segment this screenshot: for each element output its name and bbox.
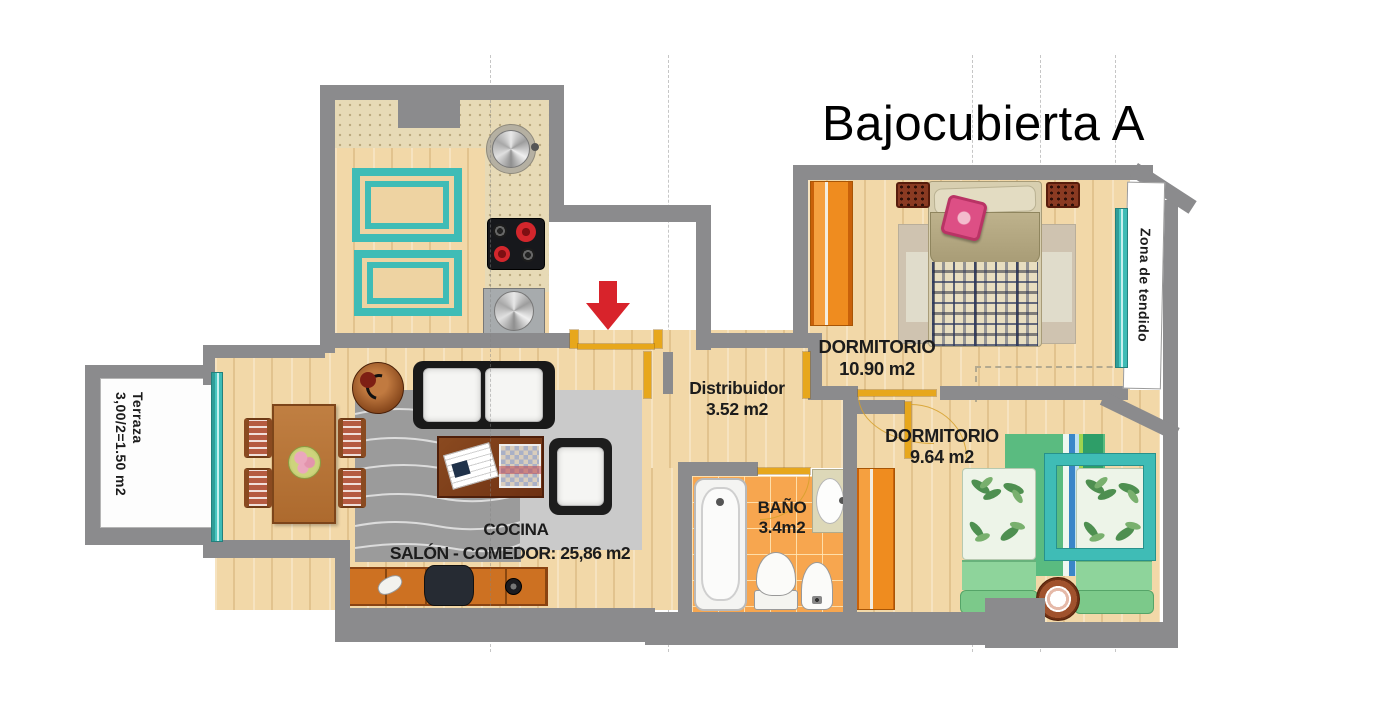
- room-area: 10.90 m2: [797, 358, 957, 380]
- stove-burner: [521, 248, 535, 262]
- room-label-distribuidor: Distribuidor 3.52 m2: [657, 378, 817, 419]
- terrace-window: [211, 372, 223, 542]
- wall-segment: [330, 333, 576, 348]
- room-name: BAÑO: [740, 498, 824, 518]
- nightstand: [1046, 182, 1080, 208]
- table-centerpiece: [288, 446, 321, 479]
- dining-chair: [338, 468, 366, 508]
- grid-line: [490, 100, 491, 606]
- single-bed: [962, 468, 1036, 560]
- room-label-dormitorio-2: DORMITORIO 9.64 m2: [862, 426, 1022, 468]
- bed-blanket: [962, 560, 1036, 590]
- room-area: 9.64 m2: [862, 447, 1022, 468]
- page-title: Bajocubierta A: [822, 96, 1145, 152]
- bidet-tap: [812, 596, 822, 604]
- leaf-pattern: [963, 469, 1035, 559]
- plant-pot: [360, 372, 376, 388]
- wall-segment: [678, 462, 692, 615]
- armchair-cushion: [557, 447, 604, 506]
- roof-window-frame: [1045, 454, 1155, 560]
- bed-blanket: [1076, 560, 1152, 590]
- room-label-dormitorio-1: DORMITORIO 10.90 m2: [797, 336, 957, 380]
- dining-chair: [338, 418, 366, 458]
- wall-segment: [85, 528, 220, 545]
- wall-segment: [203, 540, 350, 558]
- washing-machine-drum: [494, 291, 534, 331]
- bedroom1-window: [1115, 208, 1128, 368]
- room-name: DORMITORIO: [862, 426, 1022, 447]
- room-label-cocina: COCINA: [461, 520, 571, 540]
- plaid-blanket: [932, 262, 1038, 346]
- door-frame: [570, 330, 578, 348]
- wall-segment: [320, 85, 335, 353]
- wall-segment: [645, 612, 1025, 645]
- wall-segment: [549, 205, 711, 222]
- sofa-cushion: [485, 368, 543, 422]
- wall-segment: [320, 85, 564, 100]
- wall-segment: [793, 165, 808, 340]
- dining-chair: [244, 468, 272, 508]
- stove-burner: [494, 246, 510, 262]
- room-area: 3.4m2: [740, 518, 824, 538]
- room-area: 3.52 m2: [657, 399, 817, 420]
- room-name: Distribuidor: [657, 378, 817, 399]
- sink-faucet: [531, 143, 539, 151]
- entry-door-leaf: [578, 344, 654, 349]
- drying-zone: Zona de tendido: [1123, 182, 1165, 390]
- wall-segment: [696, 205, 711, 350]
- wall-segment: [85, 365, 100, 545]
- wall-segment: [549, 85, 564, 222]
- wardrobe: [855, 468, 895, 610]
- wall-segment: [335, 608, 655, 642]
- kitchen-table-inner: [367, 262, 449, 304]
- room-name: DORMITORIO: [797, 336, 957, 358]
- room-label-bano: BAÑO 3.4m2: [740, 498, 824, 538]
- room-label-zona-tendido: Zona de tendido: [1134, 228, 1153, 342]
- bed-footboard: [1074, 590, 1154, 614]
- wall-segment: [793, 165, 1153, 180]
- room-name: Terraza: [129, 392, 146, 532]
- wardrobe: [810, 181, 853, 326]
- wall-segment: [940, 386, 1128, 400]
- room-label-salon-comedor: SALÓN - COMEDOR: 25,86 m2: [379, 543, 641, 564]
- wall-segment: [843, 400, 857, 615]
- floor-plan: Bajocubierta A Zona de tendido Distribui…: [0, 0, 1400, 703]
- television: [424, 565, 474, 606]
- wall-segment: [85, 365, 215, 378]
- stove-burner: [516, 222, 536, 242]
- entrance-arrow-icon: [586, 281, 630, 331]
- room-area: 3,00/2=1.50 m2: [112, 392, 129, 532]
- kitchen-table-inner: [365, 181, 449, 229]
- stove-burner: [493, 224, 507, 238]
- dining-chair: [244, 418, 272, 458]
- decor-bowl: [505, 578, 522, 595]
- wall-segment: [678, 462, 758, 476]
- nightstand: [896, 182, 930, 208]
- wall-segment: [203, 345, 325, 358]
- door-frame: [644, 352, 651, 398]
- wall-segment: [985, 622, 1178, 648]
- kitchen-sink-basin: [492, 130, 530, 168]
- bathtub-drain: [716, 498, 724, 506]
- wall-segment: [398, 100, 460, 128]
- swatch-row: [499, 466, 541, 474]
- room-label-terraza: Terraza 3,00/2=1.50 m2: [112, 392, 146, 532]
- door-frame: [654, 330, 662, 348]
- sofa-cushion: [423, 368, 481, 422]
